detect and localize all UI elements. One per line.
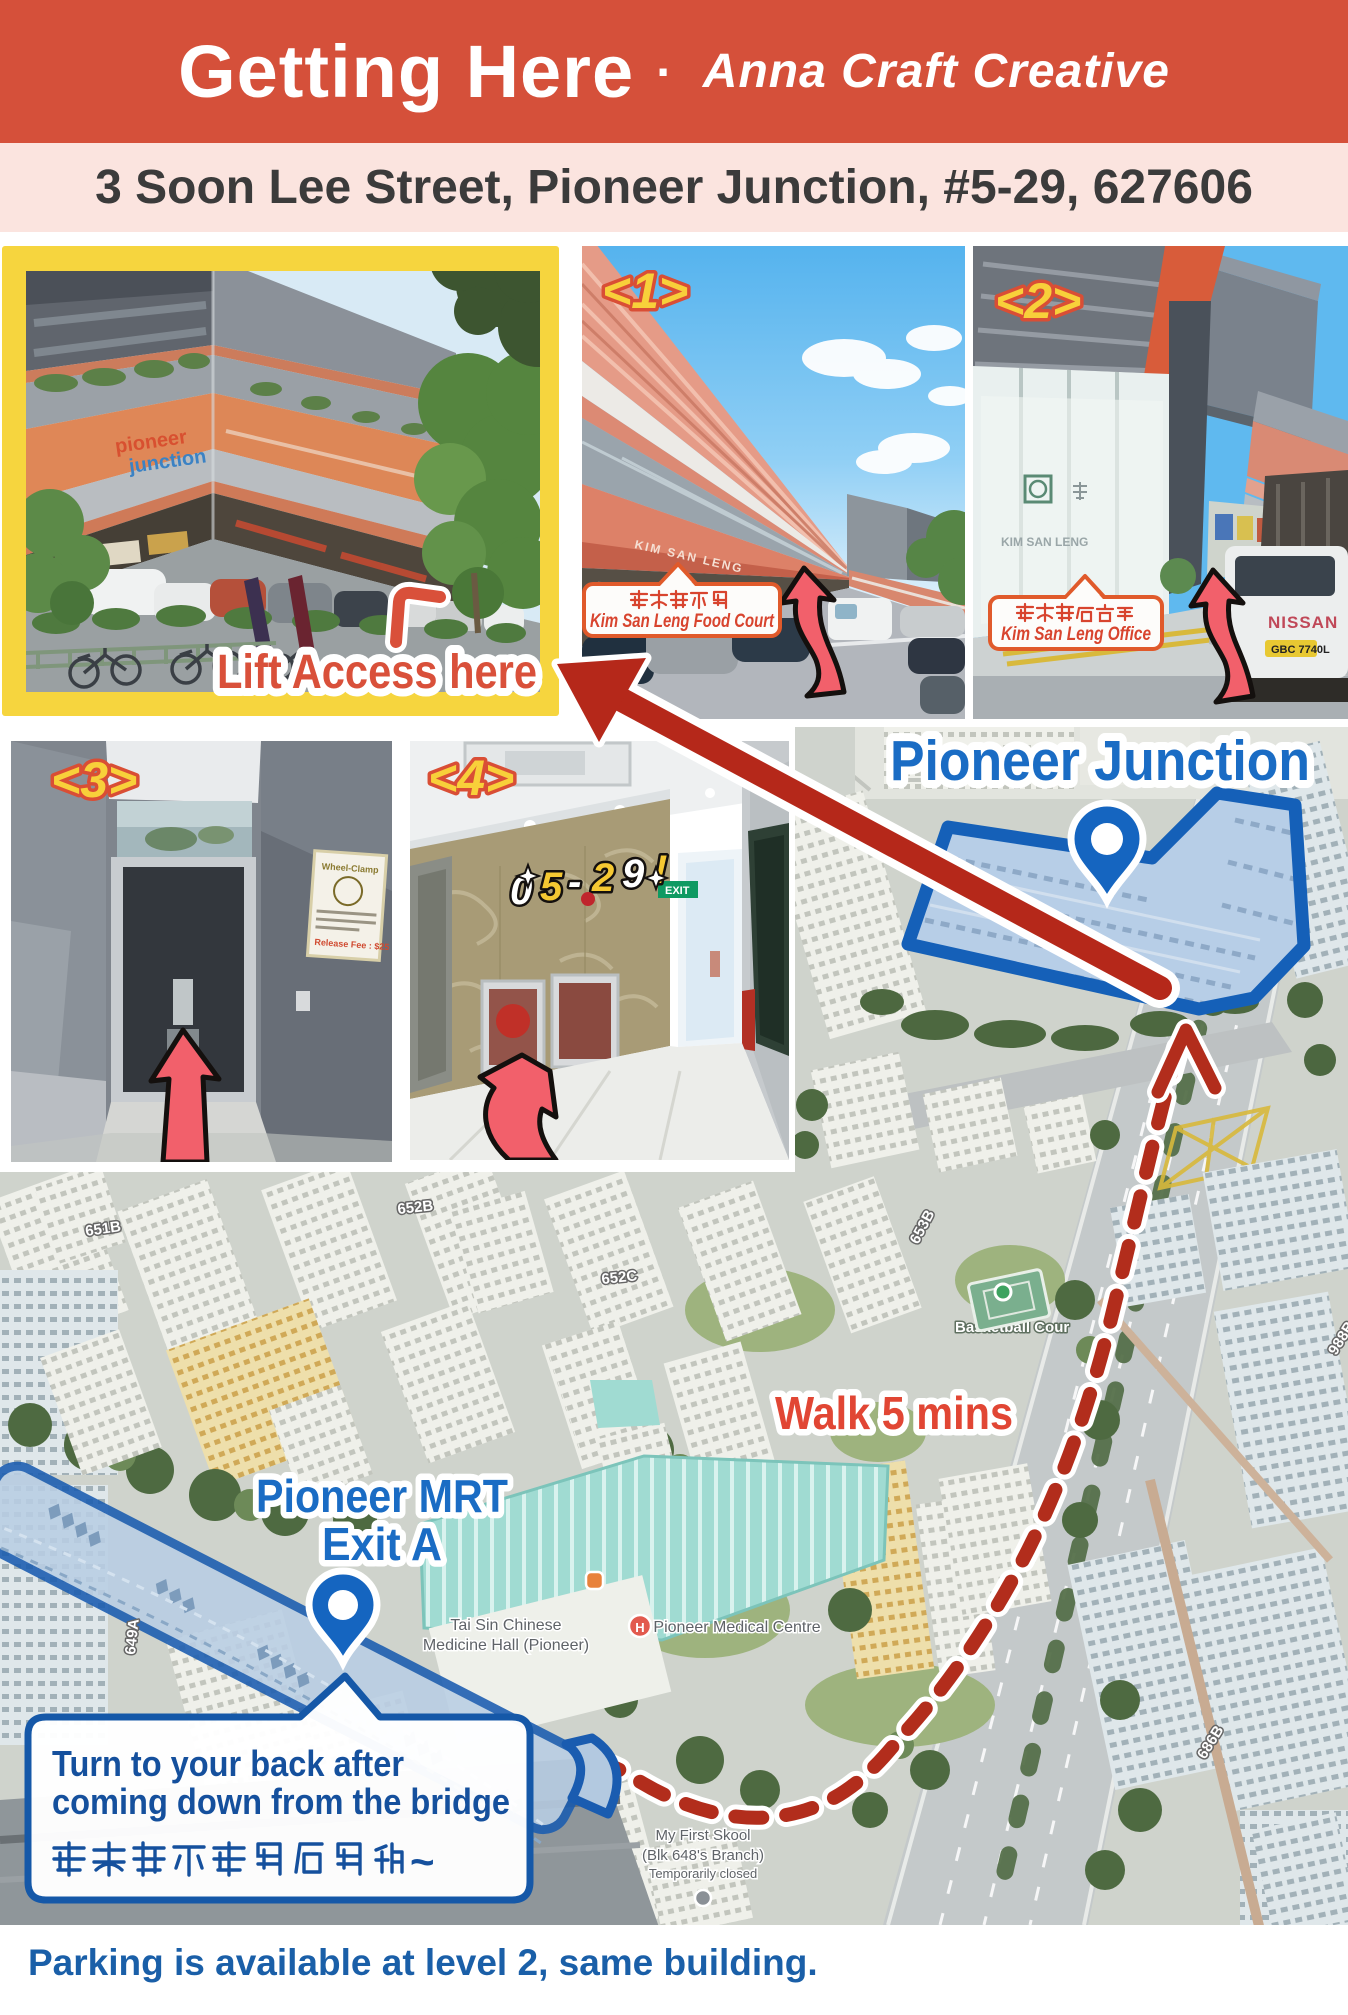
- svg-text:9: 9: [622, 852, 645, 896]
- svg-text:2: 2: [591, 856, 614, 900]
- svg-text:Kim San Leng Office: Kim San Leng Office: [1001, 624, 1151, 645]
- svg-text:EXIT: EXIT: [665, 885, 690, 897]
- svg-text:Pioneer MRT: Pioneer MRT: [256, 1470, 508, 1522]
- svg-text:-: -: [568, 860, 581, 904]
- svg-text:Temporarily closed: Temporarily closed: [649, 1866, 757, 1881]
- svg-text:Lift Access here: Lift Access here: [217, 646, 537, 699]
- svg-text:Turn to your back after: Turn to your back after: [52, 1743, 404, 1784]
- svg-text:~: ~: [410, 1838, 435, 1885]
- svg-text:Pioneer Medical Centre: Pioneer Medical Centre: [653, 1619, 820, 1636]
- svg-text:<2>: <2>: [995, 273, 1081, 329]
- svg-text:5: 5: [540, 865, 563, 909]
- svg-text:Tai Sin Chinese: Tai Sin Chinese: [450, 1617, 561, 1634]
- svg-text:Walk 5 mins: Walk 5 mins: [775, 1387, 1013, 1439]
- svg-text:(Blk 648's Branch): (Blk 648's Branch): [642, 1847, 764, 1864]
- svg-text:coming down from the bridge: coming down from the bridge: [52, 1781, 510, 1822]
- svg-text:Medicine Hall (Pioneer): Medicine Hall (Pioneer): [423, 1637, 589, 1654]
- svg-text:H: H: [635, 1620, 644, 1635]
- svg-text:NISSAN: NISSAN: [1268, 613, 1338, 632]
- svg-text:KIM SAN LENG: KIM SAN LENG: [1001, 535, 1088, 549]
- svg-text:<3>: <3>: [51, 752, 137, 808]
- svg-text:Kim San Leng Food Court: Kim San Leng Food Court: [590, 611, 775, 632]
- svg-text:Exit A: Exit A: [322, 1518, 442, 1570]
- svg-text:<4>: <4>: [428, 750, 514, 806]
- svg-text:GBC 7740L: GBC 7740L: [1271, 644, 1330, 656]
- svg-text:Pioneer Junction: Pioneer Junction: [890, 729, 1310, 793]
- svg-text:<1>: <1>: [602, 263, 688, 319]
- svg-text:My First Skool: My First Skool: [655, 1827, 750, 1844]
